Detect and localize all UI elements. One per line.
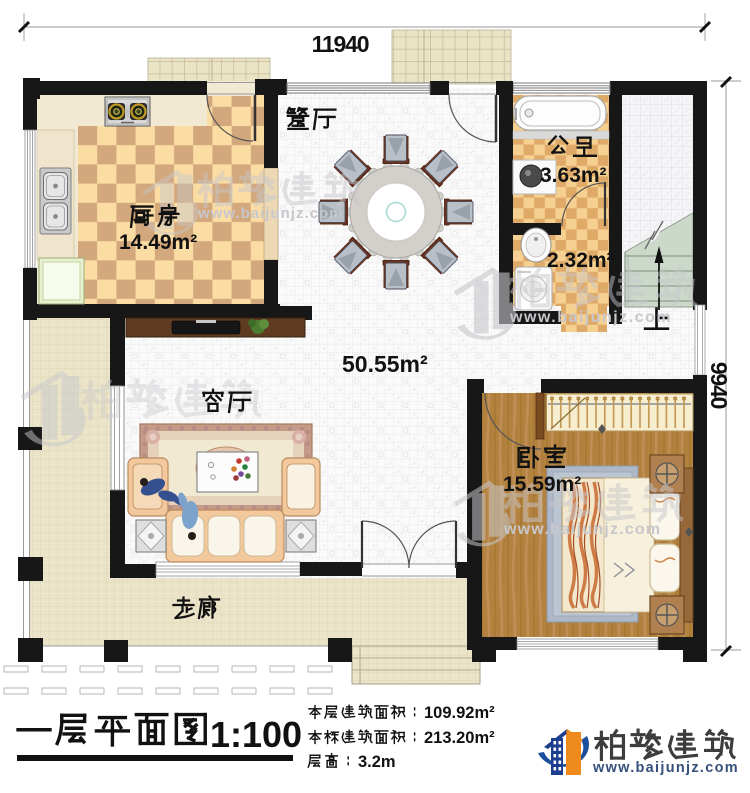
svg-text:www.baijunjz.com: www.baijunjz.com [503,521,661,538]
svg-text:213.20m²: 213.20m² [424,729,495,747]
svg-text:109.92m²: 109.92m² [424,704,495,722]
svg-text:3.2m: 3.2m [358,753,396,771]
svg-text:3.63m²: 3.63m² [540,164,607,187]
svg-text:14.49m²: 14.49m² [119,231,197,254]
svg-text:2.32m²: 2.32m² [547,249,614,272]
svg-text:www.baijunjz.com: www.baijunjz.com [509,309,672,326]
svg-text:9940: 9940 [706,362,732,409]
svg-text:www.baijunjz.com: www.baijunjz.com [592,760,739,776]
svg-text:50.55m²: 50.55m² [342,351,428,377]
svg-text:11940: 11940 [312,31,369,57]
svg-text:1:100: 1:100 [210,714,302,755]
svg-text:15.59m²: 15.59m² [503,473,581,496]
svg-text:www.baijunjz.com: www.baijunjz.com [197,205,343,222]
